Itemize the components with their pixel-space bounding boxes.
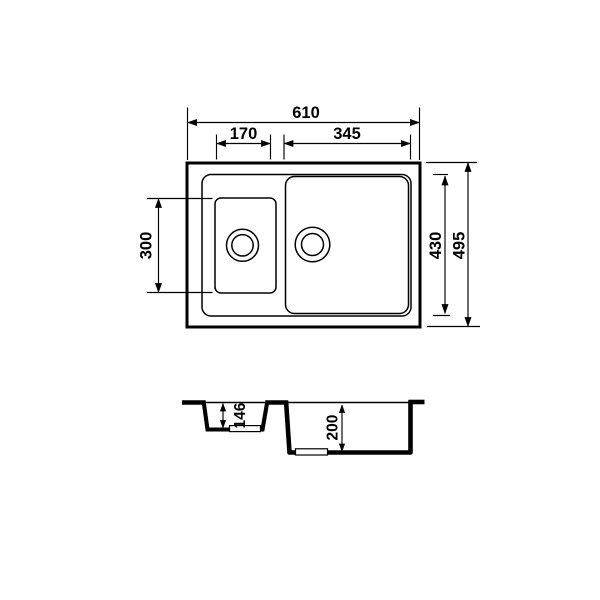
dim-small-bowl-depth: 146 xyxy=(223,402,249,428)
dim-overall-width: 610 xyxy=(188,104,420,160)
dim-main-bowl-depth-label: 200 xyxy=(325,415,342,441)
small-bowl xyxy=(215,198,276,293)
drawing-svg: 610 170 345 300 xyxy=(0,0,600,600)
dim-main-bowl-width: 345 xyxy=(284,125,411,160)
section-main-bowl-profile xyxy=(286,401,411,453)
inner-rim xyxy=(202,175,411,317)
main-bowl xyxy=(286,177,409,314)
dim-small-bowl-depth-label: 146 xyxy=(232,402,249,428)
dim-bowls-length-label: 430 xyxy=(427,232,445,260)
top-view: 610 170 345 300 xyxy=(138,104,481,327)
dim-small-bowl-length-label: 300 xyxy=(138,232,156,260)
dim-main-bowl-depth: 200 xyxy=(325,405,343,452)
dim-small-bowl-width-label: 170 xyxy=(230,125,258,143)
dim-small-bowl-width: 170 xyxy=(217,125,271,160)
main-bowl-drain-recess xyxy=(296,449,328,455)
main-bowl-drain-inner xyxy=(302,234,324,256)
sink-technical-drawing: 610 170 345 300 xyxy=(0,0,600,600)
dim-bowls-length: 430 xyxy=(427,175,450,316)
small-bowl-drain-inner xyxy=(232,235,253,256)
dim-overall-width-label: 610 xyxy=(292,104,320,122)
main-bowl-drain-outer xyxy=(295,227,330,262)
dim-main-bowl-width-label: 345 xyxy=(333,125,361,143)
section-view: 146 200 xyxy=(182,401,425,456)
dim-overall-length-label: 495 xyxy=(451,232,469,260)
outer-rim xyxy=(187,163,420,327)
